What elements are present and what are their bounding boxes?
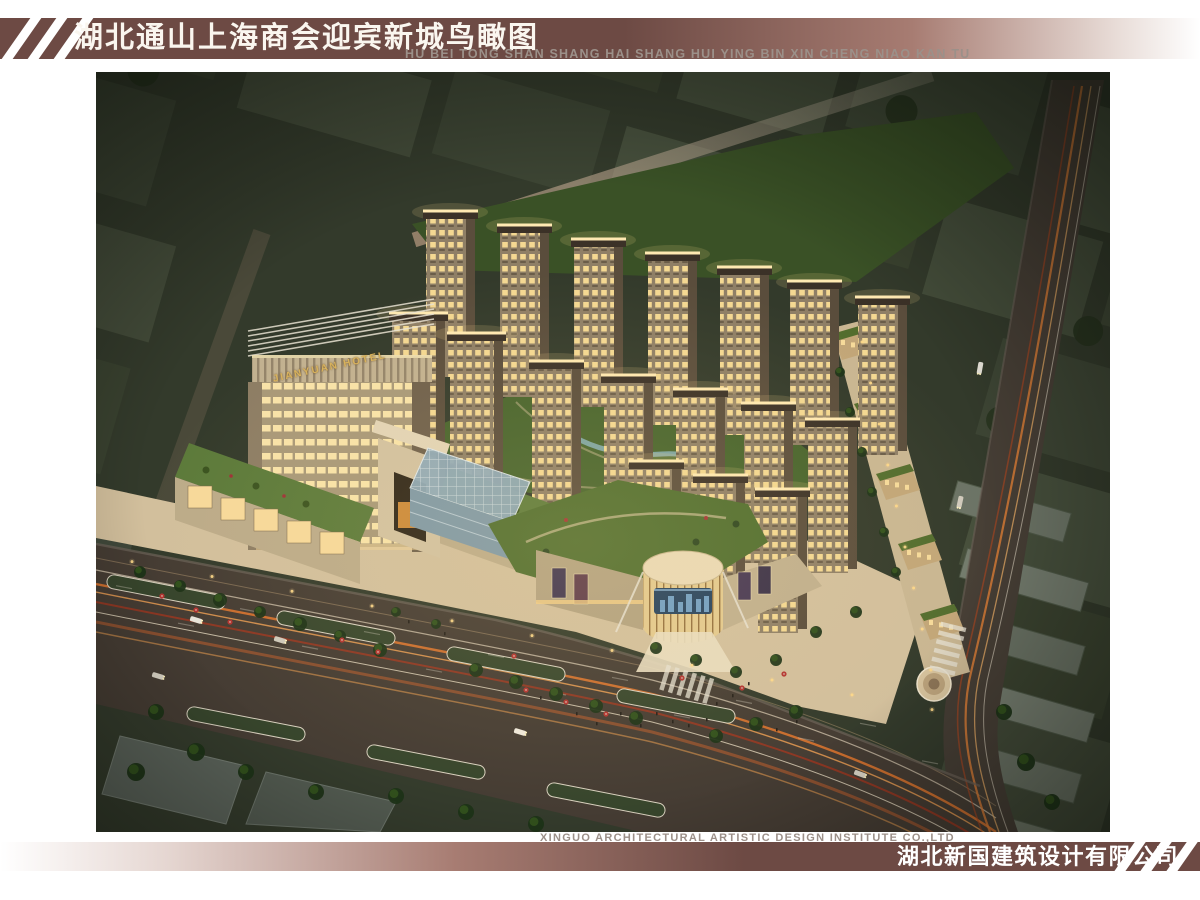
aerial-render-canvas: [96, 72, 1110, 832]
presentation-board: 湖北通山上海商会迎宾新城鸟瞰图 HU BEI TONG SHAN SHANG H…: [0, 0, 1200, 900]
page-title-pinyin: HU BEI TONG SHAN SHANG HAI SHANG HUI YIN…: [405, 47, 905, 61]
aerial-render: JIANYUAN HOTEL: [96, 72, 1110, 832]
design-institute-cn: 湖北新国建筑设计有限公司: [897, 844, 1179, 870]
vignette: [96, 72, 1110, 832]
design-institute-en: XINGUO ARCHITECTURAL ARTISTIC DESIGN INS…: [540, 832, 890, 844]
